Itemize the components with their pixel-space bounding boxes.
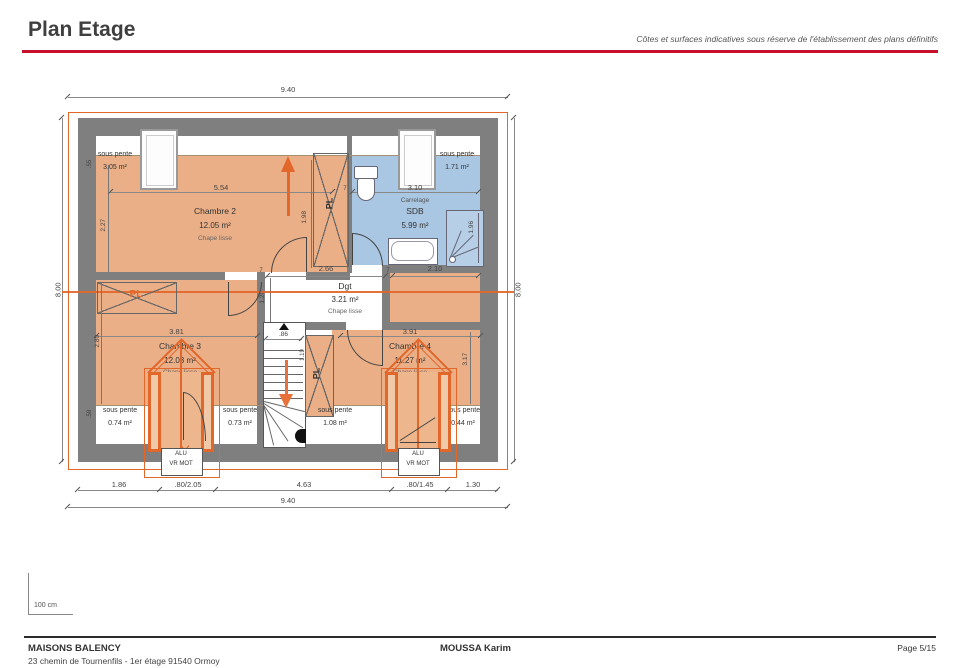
stairs-up-arrow-icon <box>279 323 289 330</box>
dim-sp-bottom-height: .58 <box>87 403 93 425</box>
sdb-area: 5.99 m² <box>380 221 450 230</box>
dim-line-shower <box>478 213 479 263</box>
dim-chambre2-width: 5.54 <box>110 184 332 192</box>
footer-client: MOUSSA Karim <box>440 643 511 654</box>
shower-drain-icon <box>449 256 456 263</box>
dim-line-chambre3-w <box>96 336 257 337</box>
footer-page-number: Page 5/15 <box>897 643 936 653</box>
chambre2-area: 12.05 m² <box>160 221 270 230</box>
dim-line-dgt-w <box>267 276 385 277</box>
dim-line-top <box>68 97 508 98</box>
dim-pl-top-height: 1.98 <box>302 199 309 235</box>
page-title: Plan Etage <box>28 18 135 42</box>
scale-label: 100 cm <box>34 602 57 609</box>
sdb-door-leaf <box>352 233 353 265</box>
wall-ch2-ch3 <box>96 272 225 280</box>
footer-address: 23 chemin de Tournenfils - 1er étage 915… <box>28 656 220 666</box>
sous-pente-top-right-area: 1.71 m² <box>430 164 484 171</box>
dim-sp-top-height: .55 <box>87 153 93 175</box>
dormer-left-ridge-line <box>180 340 182 448</box>
dim-wall-t3: 7 <box>383 268 393 275</box>
dormer-right-jamb-core <box>388 375 395 449</box>
chambre2-door-leaf <box>306 237 307 272</box>
chambre4-door-leaf <box>382 330 383 365</box>
scale-horizontal-line <box>28 614 73 615</box>
dim-height-right: 8.00 <box>514 270 522 310</box>
chambre3-door-leaf <box>228 282 229 315</box>
sdb-name: SDB <box>380 206 450 216</box>
roof-window-right-frame <box>404 135 432 186</box>
dim-pl-mid-height: 1.19 <box>300 341 306 369</box>
dormer-left-window-label2: VR MOT <box>161 461 201 467</box>
dim-line-chambre2-w <box>110 192 332 193</box>
dim-tick <box>505 94 511 100</box>
sous-pente-top-right-label: sous pente <box>430 151 484 158</box>
stairs-down-arrow-stem <box>285 360 288 396</box>
footer-rule <box>24 636 936 638</box>
dormer-right-jamb-core <box>441 375 448 449</box>
footer-company: MAISONS BALENCY <box>28 643 121 654</box>
dim-chambre3-width: 3.81 <box>96 328 257 336</box>
plan-etage-page: Plan Etage Côtes et surfaces indicatives… <box>0 0 960 668</box>
dormer-left-window-label1: ALU <box>161 451 201 457</box>
header-disclaimer: Côtes et surfaces indicatives sous réser… <box>636 34 938 44</box>
dim-bottom-seg2: .80/2.05 <box>160 481 216 489</box>
dormer-right-window-label1: ALU <box>398 451 438 457</box>
sous-pente-top-left-area: 3.05 m² <box>88 164 142 171</box>
toilet-bowl-icon <box>357 178 375 201</box>
dim-bottom-seg1: 1.86 <box>78 481 160 489</box>
dim-wall-t1: 7 <box>340 186 350 193</box>
scale-vertical-line <box>28 573 29 615</box>
dormer-right-flap-base <box>400 442 436 443</box>
closet-pl-corridor-label: PL <box>120 289 152 300</box>
dormer-left-door-leaf <box>183 392 184 440</box>
dim-line-chambre2-h <box>108 165 109 272</box>
dim-sdb-bottom-width: 2.10 <box>392 265 478 273</box>
dim-chambre2-height: 2.27 <box>101 205 108 245</box>
sous-pente-top-left-label: sous pente <box>88 151 142 158</box>
sous-pente-bl-label: sous pente <box>90 407 150 414</box>
sdb-finish-label: Carrelage <box>380 197 450 204</box>
dim-line-right <box>514 118 515 462</box>
north-arrow-icon <box>281 156 295 172</box>
dim-line-pl-top <box>311 160 312 268</box>
chambre2-name: Chambre 2 <box>160 206 270 216</box>
sous-pente-bmr-label: sous pente <box>305 407 365 414</box>
closet-pl-mid-label: PL <box>313 359 322 389</box>
north-arrow-stem <box>287 172 290 216</box>
dgt-name: Dgt <box>305 281 385 291</box>
dim-width-top: 9.40 <box>68 86 508 94</box>
dim-line-bottom <box>68 507 508 508</box>
dim-bottom-seg5: 1.30 <box>448 481 498 489</box>
closet-pl-top-label: PL <box>326 188 335 220</box>
dim-bottom-seg3: 4.63 <box>216 481 392 489</box>
roof-window-left-frame <box>146 135 174 186</box>
bathtub-inner <box>391 241 434 261</box>
chambre2-floor-label: Chape lisse <box>160 235 270 242</box>
sous-pente-bl-area: 0.74 m² <box>90 420 150 427</box>
stairs-down-arrow-icon <box>279 394 293 408</box>
sous-pente-bmr-area: 1.08 m² <box>305 420 365 427</box>
dim-line-sdb-bottom <box>392 276 478 277</box>
dim-line-left <box>62 118 63 462</box>
dgt-floor-label: Chape lisse <box>305 308 385 315</box>
stairs-treads <box>264 343 303 400</box>
stairs-newel-icon <box>295 429 306 443</box>
dim-shower-height: 1.96 <box>469 209 476 245</box>
dormer-right-window-label2: VR MOT <box>398 461 438 467</box>
dim-tick <box>59 459 65 465</box>
dormer-right-ridge-line <box>417 340 419 448</box>
dgt-area: 3.21 m² <box>305 295 385 304</box>
dim-line-stair-w <box>266 339 302 340</box>
dim-line-chambre3-h <box>101 283 102 404</box>
dim-tick <box>511 459 517 465</box>
dormer-left-jamb-core <box>151 375 158 449</box>
dim-wall-t2: 7 <box>256 268 266 275</box>
dim-bottom-seg4: .80/1.45 <box>392 481 448 489</box>
dim-height-left: 8.00 <box>54 270 62 310</box>
header-rule <box>22 50 938 53</box>
dim-stair-width: .86 <box>263 331 304 338</box>
dim-width-bottom: 9.40 <box>68 497 508 505</box>
dim-line-bottom-seg <box>78 490 498 491</box>
